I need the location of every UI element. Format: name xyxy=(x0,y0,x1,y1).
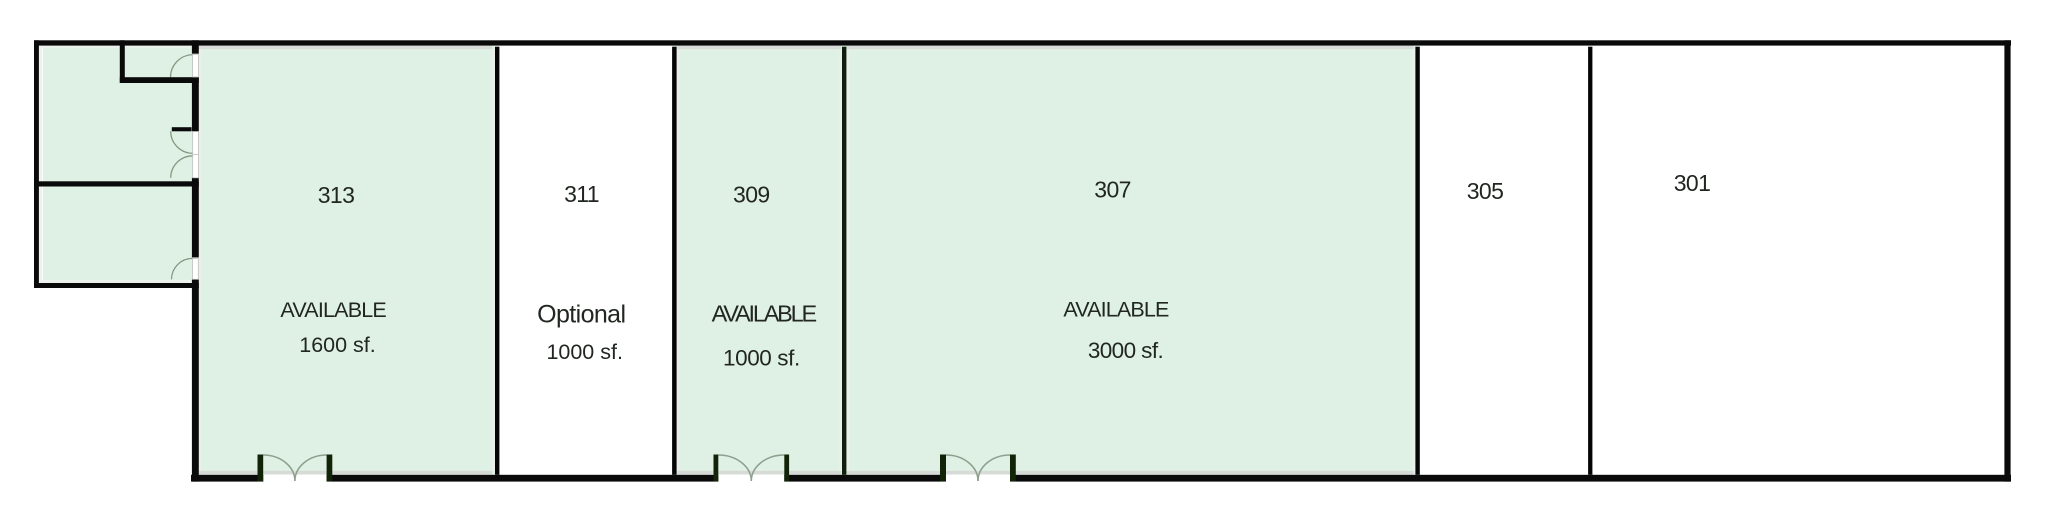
svg-text:311: 311 xyxy=(564,181,599,207)
svg-text:1000 sf.: 1000 sf. xyxy=(546,340,623,364)
svg-text:1000 sf.: 1000 sf. xyxy=(723,345,800,370)
svg-text:AVAILABLE: AVAILABLE xyxy=(280,298,386,322)
svg-text:307: 307 xyxy=(1094,176,1131,202)
svg-text:313: 313 xyxy=(318,182,355,208)
svg-text:301: 301 xyxy=(1674,170,1711,196)
svg-text:Optional: Optional xyxy=(537,301,625,329)
svg-text:AVAILABLE: AVAILABLE xyxy=(1063,298,1169,322)
svg-text:309: 309 xyxy=(733,181,770,207)
svg-text:AVAILABLE: AVAILABLE xyxy=(712,301,817,327)
svg-text:1600 sf.: 1600 sf. xyxy=(299,333,376,357)
svg-text:3000 sf.: 3000 sf. xyxy=(1088,338,1163,363)
svg-text:305: 305 xyxy=(1467,178,1504,204)
